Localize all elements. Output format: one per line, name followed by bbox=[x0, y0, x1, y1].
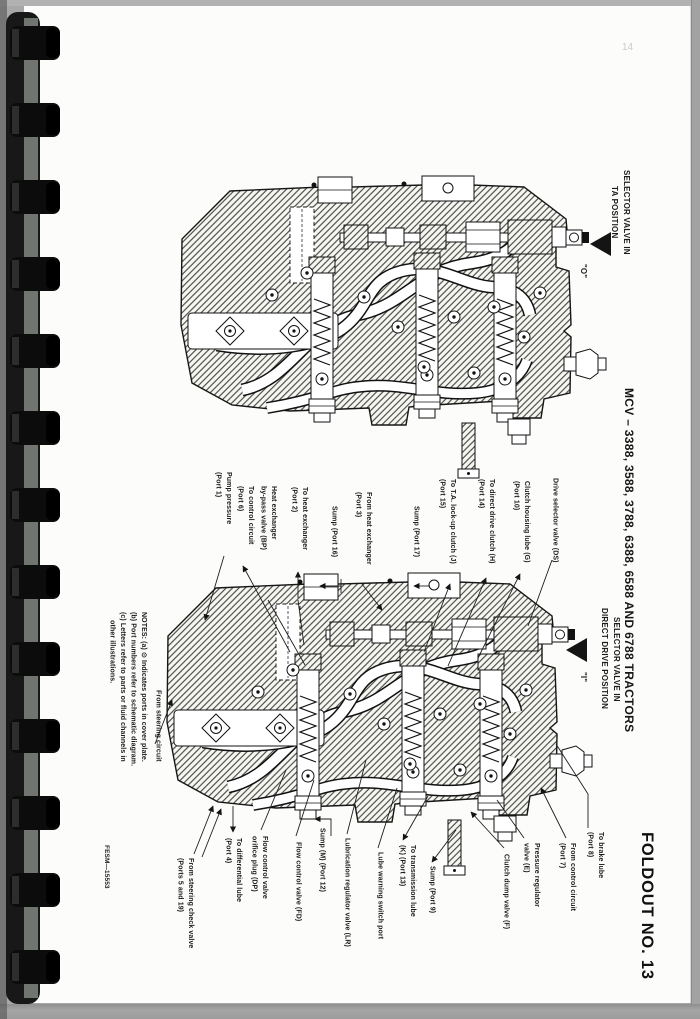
valve-cutaway-ta-position bbox=[172, 175, 608, 487]
scan-edge-bottom bbox=[0, 1004, 700, 1019]
callout-flow-control-valve-orifice-plug: Flow control valve orifice plug (DP) bbox=[248, 836, 269, 899]
callout-heat-exchanger-bypass-valve: Heat exchanger by-pass valve (BP) bbox=[257, 486, 278, 550]
callout-pressure-regulator-valve: Pressure regulator valve (E) bbox=[520, 843, 541, 907]
callout-drive-selector-valve: Drive selector valve (DS) bbox=[549, 478, 560, 563]
callout-sump-port-9: Sump (Port 9) bbox=[426, 866, 437, 913]
notes-block: NOTES: (a) ⊙ Indicates ports in cover pl… bbox=[106, 612, 148, 766]
callout-from-steering-circuit: From steering circuit bbox=[152, 690, 163, 762]
foldout-number: FOLDOUT NO. 13 bbox=[634, 832, 659, 980]
callout-sump-m-port-12: Sump (M) (Port 12) bbox=[316, 828, 327, 892]
callout-clutch-housing-lube: Clutch housing lube (G) (Port 10) bbox=[510, 481, 531, 563]
caption-ta-position: SELECTOR VALVE IN TA POSITION bbox=[608, 152, 632, 272]
callout-sump-port-16: Sump (Port 16) bbox=[328, 506, 339, 557]
position-letter-o: "O" bbox=[577, 264, 589, 278]
pencil-page-number: 14 bbox=[622, 42, 633, 53]
callout-pump-pressure: Pump pressure (Port 1) bbox=[212, 472, 233, 524]
position-letter-i: "I" bbox=[577, 672, 589, 682]
callout-from-heat-exchanger: From heat exchanger (Port 3) bbox=[352, 492, 373, 565]
callout-to-control-circuit: To control circuit (Port 6) bbox=[234, 486, 255, 544]
document-code: FESM—15553 bbox=[101, 845, 111, 889]
callout-sump-port-17: Sump (Port 17) bbox=[410, 506, 421, 557]
callout-flow-control-valve: Flow control valve (FD) bbox=[292, 842, 303, 921]
callout-lube-warning-switch-port: Lube warning switch port bbox=[374, 852, 385, 939]
callout-from-control-circuit-port7: From control circuit (Port 7) bbox=[556, 843, 577, 911]
page-title: MCV – 3388, 3588, 3788, 6388, 6588 AND 6… bbox=[620, 388, 638, 732]
spiral-binding bbox=[0, 0, 100, 1019]
callout-to-brake-lube: To brake lube (Port 8) bbox=[584, 832, 605, 878]
ta-position-arrow-icon bbox=[590, 232, 611, 256]
callout-ta-lockup-clutch: To T.A. lock-up clutch (J) (Port 15) bbox=[436, 479, 457, 564]
callout-to-transmission-lube: To transmission lube (K) (Port 13) bbox=[396, 845, 417, 917]
callout-clutch-dump-valve: Clutch dump valve (F) bbox=[500, 854, 511, 929]
callout-to-differential-lube: To differential lube (Port 4) bbox=[222, 838, 243, 902]
callout-lubrication-regulator-valve: Lubrication regulator valve (LR) bbox=[341, 838, 352, 947]
direct-drive-position-arrow-icon bbox=[566, 638, 587, 662]
callout-from-steering-check-valve: From steering check valve (Ports 5 and 1… bbox=[174, 858, 195, 948]
caption-direct-drive-position: SELECTOR VALVE IN DIRECT DRIVE POSITION bbox=[598, 590, 622, 728]
scanned-manual-page: 14 bbox=[0, 0, 700, 1019]
callout-direct-drive-clutch: To direct drive clutch (H) (Port 14) bbox=[475, 479, 496, 564]
callout-to-heat-exchanger: To heat exchanger (Port 2) bbox=[288, 487, 309, 550]
scan-edge-right bbox=[691, 0, 700, 1019]
